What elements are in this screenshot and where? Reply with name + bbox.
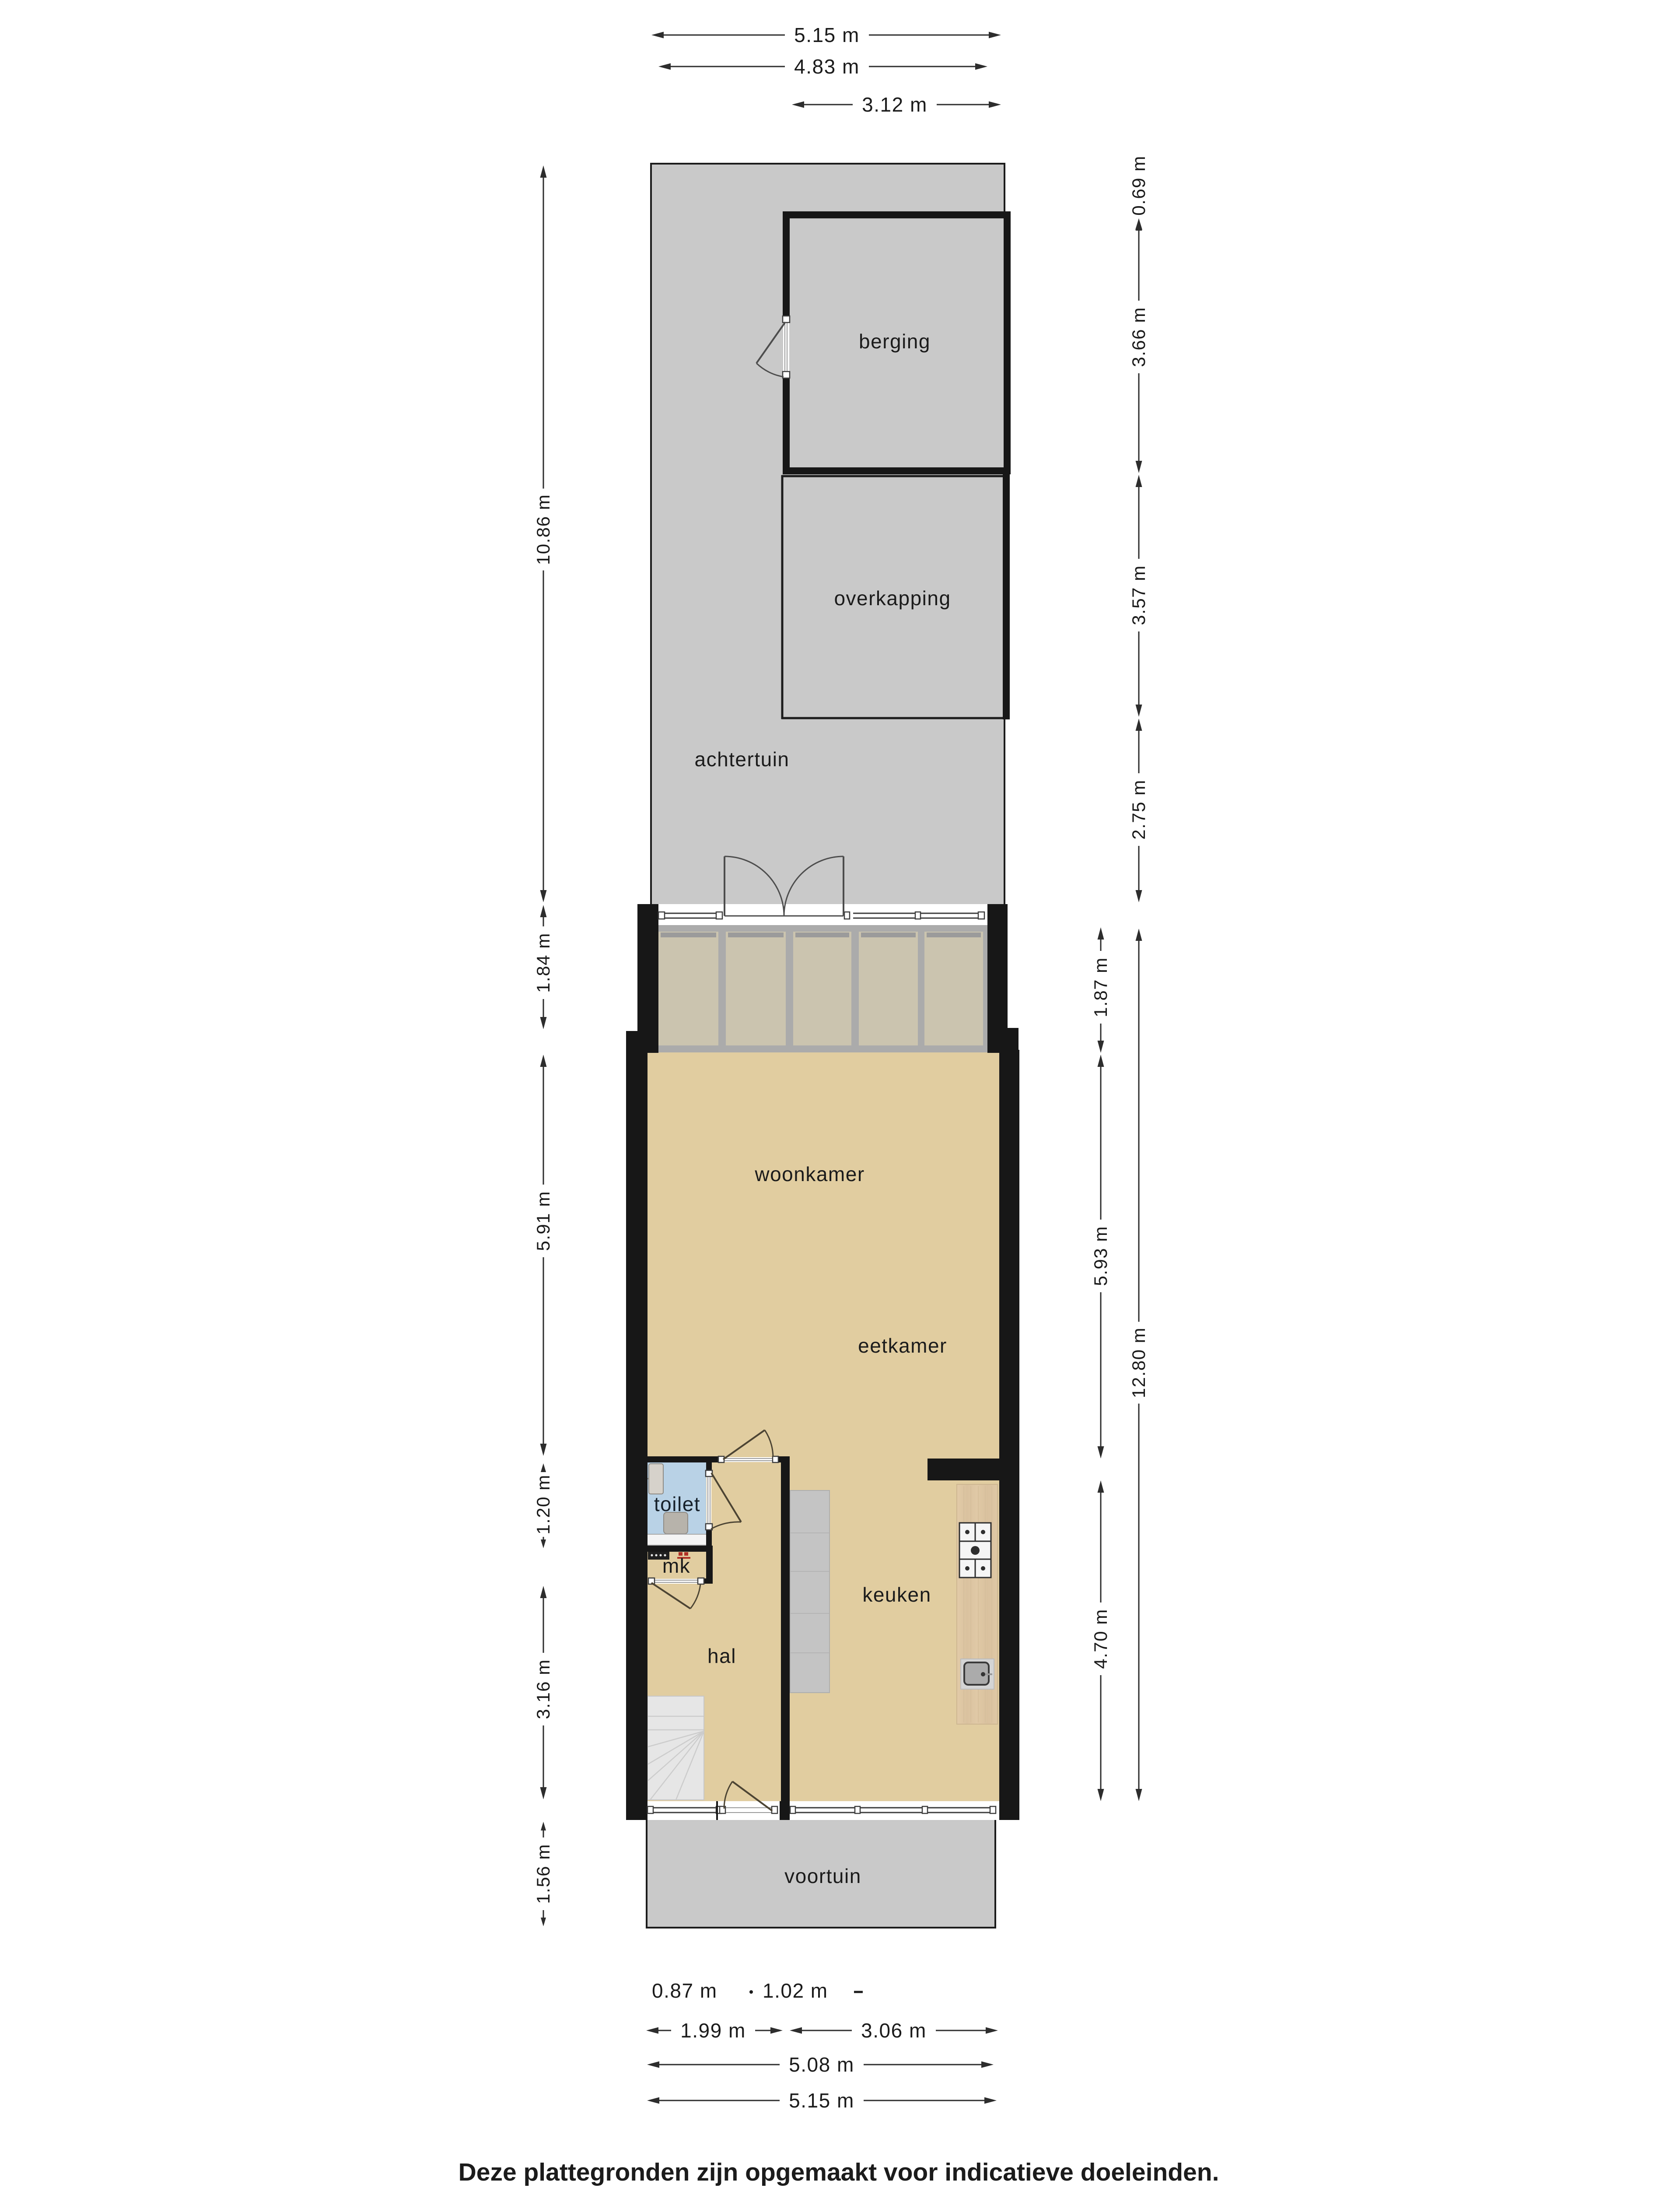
svg-text:5.93 m: 5.93 m <box>1090 1226 1111 1286</box>
svg-text:toilet: toilet <box>654 1493 700 1515</box>
svg-text:1.20 m: 1.20 m <box>533 1474 553 1534</box>
svg-text:1.02 m: 1.02 m <box>763 1979 828 2002</box>
svg-text:eetkamer: eetkamer <box>858 1334 947 1357</box>
svg-text:3.06 m: 3.06 m <box>861 2019 927 2042</box>
svg-text:keuken: keuken <box>862 1583 931 1606</box>
svg-text:voortuin: voortuin <box>784 1865 861 1887</box>
svg-text:0.69 m: 0.69 m <box>1128 155 1149 215</box>
svg-text:3.57 m: 3.57 m <box>1128 565 1149 625</box>
svg-text:10.86 m: 10.86 m <box>533 494 553 565</box>
svg-text:hal: hal <box>707 1645 736 1667</box>
svg-text:overkapping: overkapping <box>834 587 951 610</box>
svg-text:3.66 m: 3.66 m <box>1128 307 1149 367</box>
svg-text:5.91 m: 5.91 m <box>533 1191 553 1251</box>
svg-text:achtertuin: achtertuin <box>694 748 789 771</box>
svg-text:2.75 m: 2.75 m <box>1128 779 1149 839</box>
svg-text:1.87 m: 1.87 m <box>1090 957 1111 1017</box>
svg-text:5.08 m: 5.08 m <box>789 2053 854 2076</box>
svg-text:berging: berging <box>859 330 931 353</box>
svg-text:Deze plattegronden zijn opgema: Deze plattegronden zijn opgemaakt voor i… <box>458 2158 1219 2186</box>
svg-text:5.15 m: 5.15 m <box>794 24 860 46</box>
svg-text:4.83 m: 4.83 m <box>794 55 860 78</box>
svg-text:12.80 m: 12.80 m <box>1128 1327 1149 1398</box>
svg-text:1.84 m: 1.84 m <box>533 933 553 992</box>
svg-text:1.99 m: 1.99 m <box>680 2019 746 2042</box>
svg-text:5.15 m: 5.15 m <box>789 2089 854 2112</box>
svg-text:woonkamer: woonkamer <box>754 1163 864 1185</box>
svg-text:3.12 m: 3.12 m <box>862 93 927 116</box>
svg-text:0.87 m: 0.87 m <box>652 1979 717 2002</box>
svg-text:1.56 m: 1.56 m <box>533 1844 553 1904</box>
svg-text:4.70 m: 4.70 m <box>1090 1609 1111 1669</box>
svg-text:mk: mk <box>662 1554 690 1577</box>
svg-text:3.16 m: 3.16 m <box>533 1659 553 1719</box>
